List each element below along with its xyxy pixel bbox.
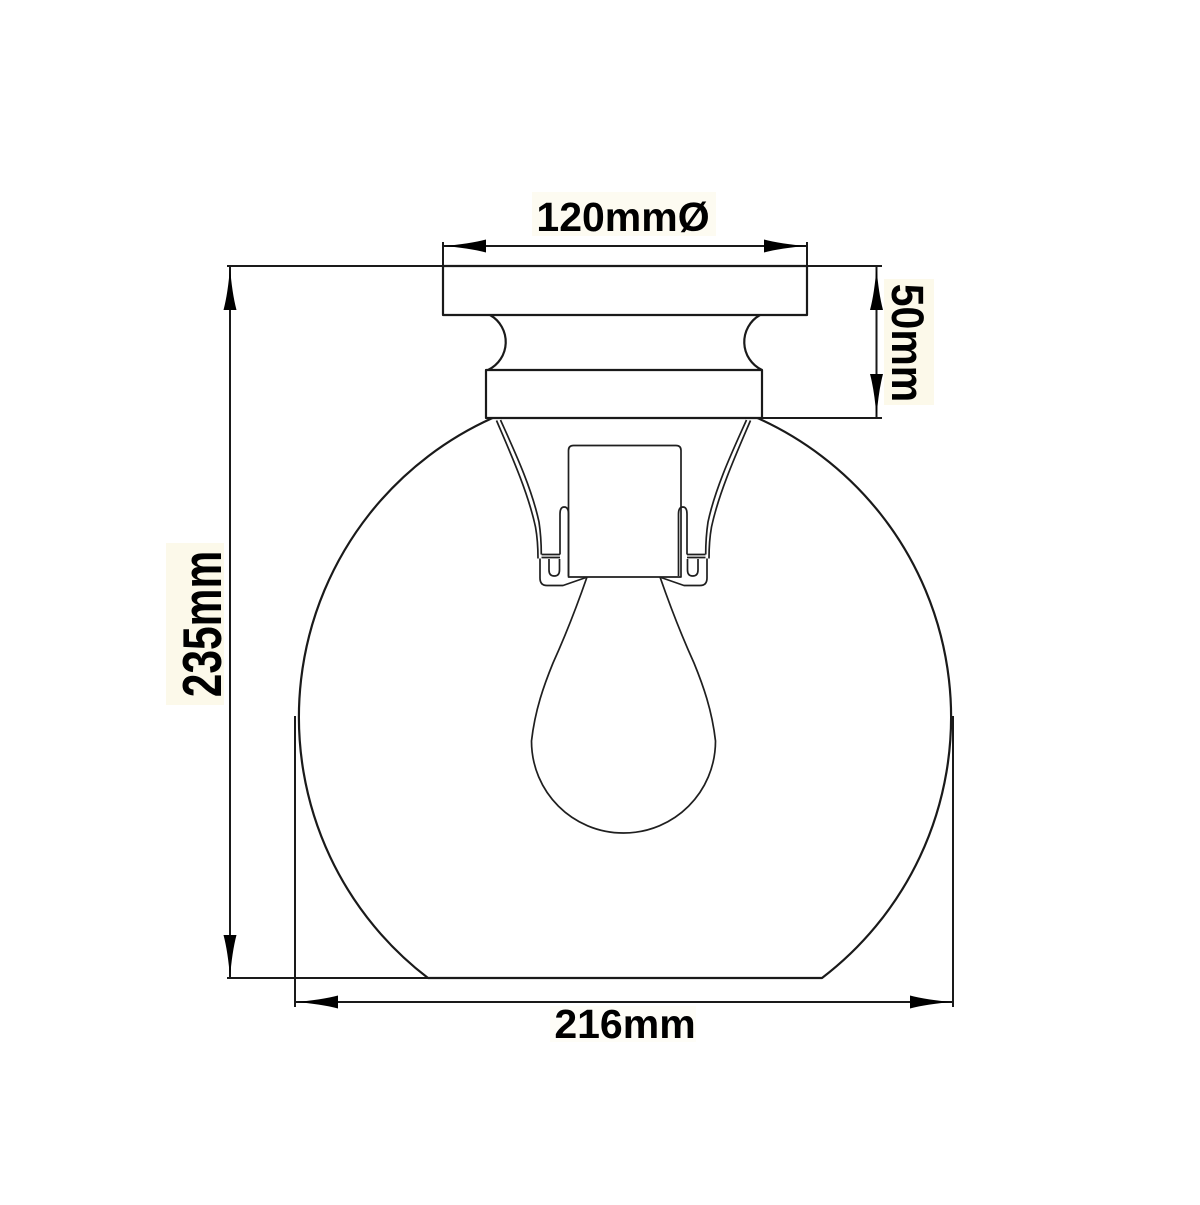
svg-text:120mmØ: 120mmØ: [536, 194, 709, 240]
svg-text:235mm: 235mm: [173, 551, 233, 697]
svg-text:50mm: 50mm: [882, 284, 932, 402]
svg-text:216mm: 216mm: [554, 1001, 695, 1047]
